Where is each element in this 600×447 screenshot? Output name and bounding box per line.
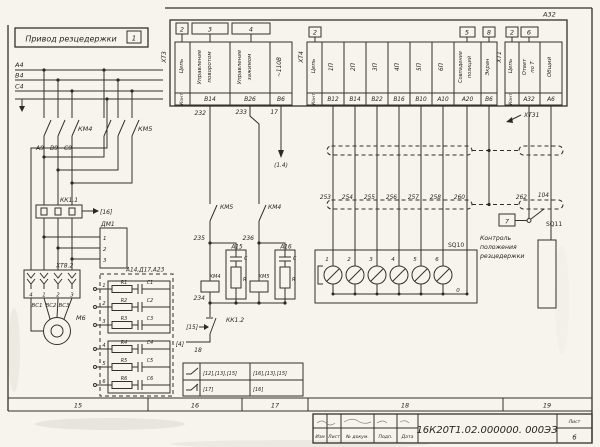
page-title: Привод резцедержки [25,35,116,44]
xt1-pin-2: А6 [546,97,555,103]
schematic-sheet: 15 16 17 18 19 Изм Лист № докум. Подп. Д… [0,0,600,447]
c3-label: С3 [147,316,153,322]
sq10-num-3: 3 [369,257,373,263]
junction-dots [42,68,490,304]
xt3-ref-2: 3 [208,26,212,34]
sq10-common-0: 0 [456,288,460,294]
doc-number: 16К20Т1.02.000000. 000ЭЗ [416,425,558,436]
rc-row-3: 3 R3 С3 [94,316,171,330]
xt3-pin-2: В26 [244,96,256,103]
xt1-col1-line1: Ответ [522,58,528,75]
xt4-pin-5: В10 [415,97,427,103]
sq10-num-1: 1 [325,257,329,263]
c5-label: С5 [147,358,153,364]
a16-label: А16 [279,245,292,251]
km5-interlock-label: КМ5 [220,204,233,211]
dm1-term-1: 1 [103,236,107,242]
tb-list: Лист [327,434,340,440]
usage-row2-b: [16] [253,387,263,393]
schematic-svg: 15 16 17 18 19 Изм Лист № докум. Подп. Д… [0,0,600,447]
xt3-pin-3: В6 [277,96,285,103]
xt1-col1-line2: по Т [530,60,536,72]
sheet-number: 6 [572,434,577,442]
dm1-label: ДМ1 [100,221,115,228]
title-zone-ref: 1 [132,35,136,43]
xt1-ref-2: 6 [527,29,531,37]
xt4-ref-1: 2 [313,29,317,37]
a15-label: А15 [230,245,243,251]
xt4-circuit-header: Цепь [311,59,317,74]
wire-262: 262 [516,195,527,201]
a16-r-label: R [292,277,295,283]
usage-row1-b: [16],[13],[15] [253,371,287,377]
position-circuit: 253 254 255 256 257 258 260 262 104 ХТ31… [315,106,563,308]
sq10-contacts [324,266,452,294]
snubber-a16: А16 С R [275,245,297,304]
xt82-term-4: 4 [29,293,33,299]
xt82-label: ХТ8.2 [55,263,74,270]
pe-wire [31,99,107,270]
r4-label: R4 [121,340,127,346]
motor-m6: ВС1 ВС2 ВС3 М6 [31,298,86,345]
node-235: 235 [194,235,206,242]
r2-label: R2 [121,298,127,304]
wire-258: 258 [430,195,441,201]
usage-row1-a: [12],[13],[15] [203,371,237,377]
ref-1-4: (1.4) [274,163,288,169]
xt4-col1: 1П [329,62,335,71]
sq11-zone-ref: 7 [505,218,510,226]
km4-power-contacts: КМ4 А9 В9 С9 [35,70,92,205]
contact-usage-table: [12],[13],[15] [16],[13],[15] [17] [16] [183,363,303,396]
rc-term-3: 3 [102,319,105,325]
mechanical-link-icon [318,266,323,284]
tb-doc: № докум. [345,434,369,440]
xt3-col3-line1: ~110В [277,57,283,77]
xt31-arrow-icon [506,117,513,123]
xt4-col5: 5П [417,62,423,71]
xt4-pin-6: А10 [436,97,449,103]
xt82-term-2: 2 [56,293,60,299]
snubber-a15: А15 С R [226,245,248,304]
node-234: 234 [194,295,206,302]
rc-row-4: 4 R4 С4 [94,340,171,354]
tb-izm: Изм [315,434,325,440]
r1-label: R1 [121,280,127,286]
device-a32: А32 ХТ3 2 3 4 Цепь Конт Управление повор… [161,11,567,107]
phase-a4: А4 [14,61,24,69]
rc-row-5: 5 R5 С5 [94,358,171,372]
motor-label: М6 [76,314,86,322]
xt1-circuit-header: Цепь [508,59,514,74]
wire-256: 256 [386,195,397,201]
xt4-pin-1: В12 [327,97,339,103]
wire-233: 233 [236,109,248,116]
dm1-block: ДМ1 1 2 3 [44,221,127,268]
usage-row2-a: [17] [203,387,213,393]
wire-104: 104 [538,193,549,199]
title-block: Изм Лист № докум. Подп. Дата 16К20Т1.02.… [313,414,592,443]
xt1-contact-header: Конт [508,93,514,105]
note-line-1: Контроль [480,235,511,242]
snubber-block-label: А14,Д17,А23 [125,268,165,274]
xt3-ref-3: 4 [249,26,253,34]
node-236: 236 [243,235,255,242]
ground-arrow-icon [19,106,25,112]
rc-row-2: 2 R2 С2 [94,298,171,312]
rc-term-1: 1 [102,283,105,289]
dm1-term-2: 2 [103,247,107,253]
zone-19: 19 [543,402,551,410]
xt4-ref-2: 5 [465,29,469,37]
note-line-2: положения [480,244,517,251]
xt3-pin-1: В14 [204,96,216,103]
xt3-col1-line2: поворотом [207,51,213,82]
xt82-term-3: 3 [70,293,74,299]
xt82-term-1: 1 [42,293,46,299]
device-a32-label: А32 [542,11,556,19]
note-line-3: резцедержки [479,253,524,260]
r6-label: R6 [121,376,127,382]
connector-xt1: ХТ1 2 6 Цепь Конт Ответ по Т Общий А32 А… [496,27,562,105]
xt3-ref-1: 2 [180,26,184,34]
c2-label: С2 [147,298,153,304]
zone-15: 15 [74,402,82,410]
no-contact-icon [186,368,198,374]
ref15-arrow-icon [204,324,209,330]
xt1-ref-1: 2 [510,29,514,37]
phase-c4: С4 [15,83,24,91]
zone-16: 16 [191,402,199,410]
xt4-name: ХТ4 [298,51,305,64]
zone-18: 18 [401,402,409,410]
xt31-label: ХТ31 [523,112,539,119]
xt4-col7-line1: Совпадение [458,51,464,83]
rc-term-6: 6 [102,379,105,385]
xt4-col2: 2П [351,62,357,71]
xt4-pin-7: А20 [461,97,474,103]
xt3-contact-header: Конт [179,93,185,105]
km5-coil-label: КМ5 [258,274,269,280]
sq10-num-2: 2 [347,257,351,263]
a15-c-label: С [244,256,248,262]
km5-power-contacts: КМ5 [44,70,152,183]
xt82-terminal-block: ХТ8.2 4 1 2 3 [24,263,80,299]
km4-contact-label: КМ4 [78,125,92,133]
xt3-circuit-header: Цепь [179,59,185,74]
rc-term-5: 5 [102,361,105,367]
ref-arrow-icon [93,208,99,214]
wire-232: 232 [195,110,207,117]
xt1-name: ХТ1 [496,51,503,64]
sheet-word: Лист [568,419,581,425]
control-circuit: А15 С R А16 С R 232 233 17 (1.4) КМ5 КМ4 [176,106,297,354]
sq10-num-6: 6 [435,257,439,263]
connector-xt4: ХТ4 2 5 8 Цепь Конт 1П 2П 3П 4П 5П 6П Со… [298,27,497,105]
xt3-col2-line1: Управление [237,49,243,84]
wire-253: 253 [320,195,331,201]
xt3-col1-line1: Управление [197,49,203,84]
kk1-2-label: КК1.2 [226,317,244,324]
wire-17: 17 [270,109,278,116]
wire-260: 260 [454,195,465,201]
c6-label: С6 [147,376,153,382]
phase-bus: А4 В4 С4 [14,61,163,112]
dm1-term-3: 3 [103,258,107,264]
phase-b4: В4 [15,72,24,80]
zone-strip: 15 16 17 18 19 [8,398,592,411]
wire-18: 18 [194,347,202,354]
rc-row-1: 1 R1 С1 [94,280,171,294]
ref-4: [4] [176,342,184,348]
wire-254: 254 [342,195,353,201]
r5-label: R5 [121,358,127,364]
connector-xt3: ХТ3 2 3 4 Цепь Конт Управление поворотом… [161,23,292,105]
tb-podp: Подп. [379,434,393,440]
kk1-1-label: КК1.1 [60,197,78,204]
km5-contact-label: КМ5 [138,125,152,133]
xt4-col6: 6П [439,62,445,71]
sq10-label: SQ10 [448,242,464,249]
r3-label: R3 [121,316,127,322]
xt4-pin-3: В22 [371,97,383,103]
wire-255: 255 [364,195,375,201]
rc-row-6: 6 R6 С6 [94,376,171,390]
rc-term-2: 2 [102,301,105,307]
xt1-pin-1: А32 [522,97,535,103]
sheet-ref-arrow-icon [278,150,284,158]
xt1-col2-line1: Общий [547,57,553,77]
xt4-contact-header: Конт [311,93,317,105]
sq10-num-5: 5 [413,257,417,263]
snubber-block: А14,Д17,А23 1 R1 С1 2 R2 С2 3 R3 С3 4 R4… [94,268,174,397]
xt3-name: ХТ3 [161,51,168,64]
xt4-pin-8: В6 [485,97,493,103]
xt4-col7-line2: позиций [467,55,473,78]
tb-data: Дата [401,434,414,440]
wire-257: 257 [408,195,419,201]
c4-label: С4 [147,340,153,346]
kk1-1-ref: [16] [100,209,113,216]
xt3-col2-line2: зажимом [247,54,253,81]
handwriting-squiggle [317,419,409,425]
xt4-col4: 4П [395,62,401,71]
km4-interlock-label: КМ4 [268,204,281,211]
xt4-col8: Экран [485,58,491,76]
xt4-pin-4: В16 [393,97,405,103]
xt4-ref-3: 8 [487,29,491,37]
sq10-switch-box: SQ10 1 2 3 4 5 6 0 [315,242,477,303]
xt4-pin-2: В14 [349,97,361,103]
scan-smudges [8,245,569,447]
motor-wire-vc3: ВС3 [58,303,70,309]
nc-contact-icon [186,384,198,391]
ref-15: [15] [186,325,198,331]
motor-wire-vc2: ВС2 [45,303,57,309]
drive-title-box: Привод резцедержки 1 [15,28,148,47]
xt4-col3: 3П [373,62,379,71]
c1-label: С1 [147,280,153,286]
a15-r-label: R [243,277,246,283]
km4-coil-label: КМ4 [209,274,220,280]
rc-term-4: 4 [102,343,105,349]
sq11-label: SQ11 [546,221,562,228]
a16-c-label: С [293,256,297,262]
zone-17: 17 [271,402,280,410]
sq10-num-4: 4 [391,257,395,263]
motor-wire-vc1: ВС1 [31,303,42,309]
